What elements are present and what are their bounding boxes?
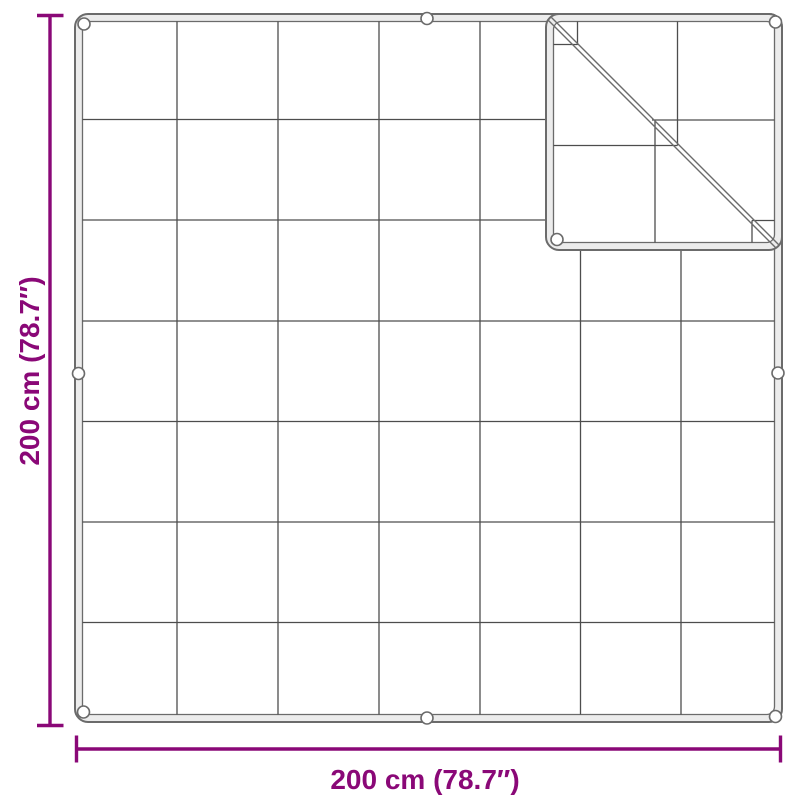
height-dimension: 200 cm (78.7″) [14,16,64,726]
product-dimension-diagram: 200 cm (78.7″) 200 cm (78.7″) [0,0,800,800]
eyelet-fold-bottom-left [551,234,563,246]
width-dimension-line [77,736,781,763]
diagram-canvas: 200 cm (78.7″) 200 cm (78.7″) [0,0,800,800]
eyelet-right-middle [772,367,784,379]
width-label: 200 cm (78.7″) [330,764,519,795]
eyelet-bottom-right [770,711,782,723]
eyelet-top-left [78,18,90,30]
eyelet-fold-top-right [770,16,782,28]
eyelet-bottom-middle [421,712,433,724]
width-dimension: 200 cm (78.7″) [77,736,781,796]
height-label: 200 cm (78.7″) [14,276,45,465]
folded-corner [546,14,782,250]
folded-corner-hem-inner [554,22,775,243]
eyelet-bottom-left [78,706,90,718]
eyelet-top-middle [421,13,433,25]
eyelet-left-middle [73,368,85,380]
